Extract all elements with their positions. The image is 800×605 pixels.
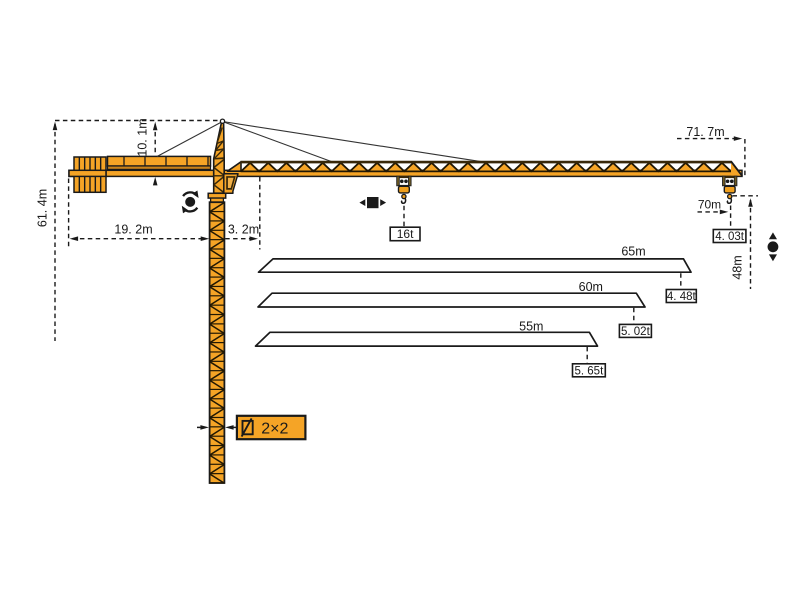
svg-text:70m: 70m (698, 198, 721, 212)
svg-text:4. 48t: 4. 48t (667, 291, 697, 303)
svg-text:65m: 65m (621, 245, 645, 259)
svg-text:5. 02t: 5. 02t (621, 326, 651, 338)
svg-text:3. 2m: 3. 2m (228, 223, 259, 237)
svg-text:19. 2m: 19. 2m (114, 223, 152, 237)
svg-text:16t: 16t (397, 227, 414, 241)
svg-text:55m: 55m (519, 319, 543, 333)
svg-text:71. 7m: 71. 7m (686, 125, 724, 139)
svg-text:2×2: 2×2 (261, 420, 288, 437)
svg-text:60m: 60m (579, 280, 603, 294)
svg-text:10. 1m: 10. 1m (136, 118, 150, 156)
svg-text:61. 4m: 61. 4m (36, 189, 50, 227)
svg-text:48m: 48m (731, 255, 745, 279)
svg-text:4. 03t: 4. 03t (715, 231, 745, 243)
svg-text:5. 65t: 5. 65t (575, 366, 605, 378)
